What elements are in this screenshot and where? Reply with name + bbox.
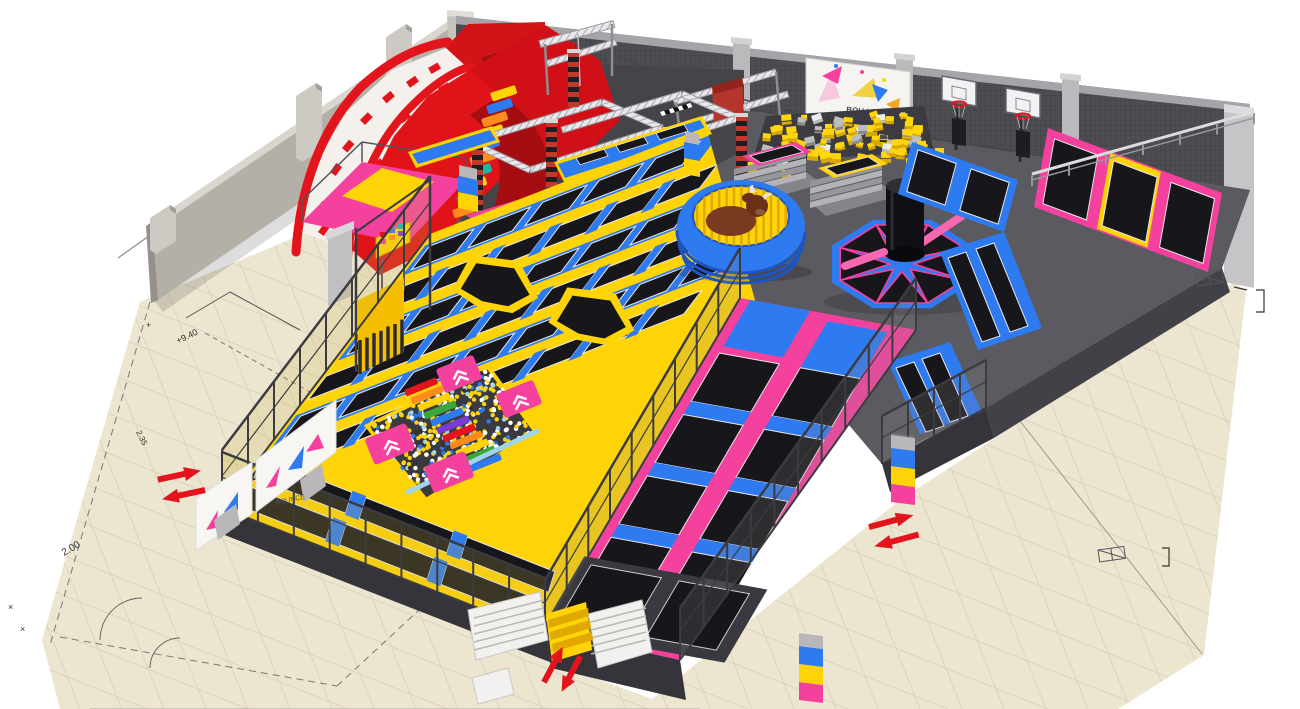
svg-text:×: × xyxy=(8,602,13,612)
svg-text:+: + xyxy=(146,320,151,330)
svg-text:×: × xyxy=(20,624,25,634)
